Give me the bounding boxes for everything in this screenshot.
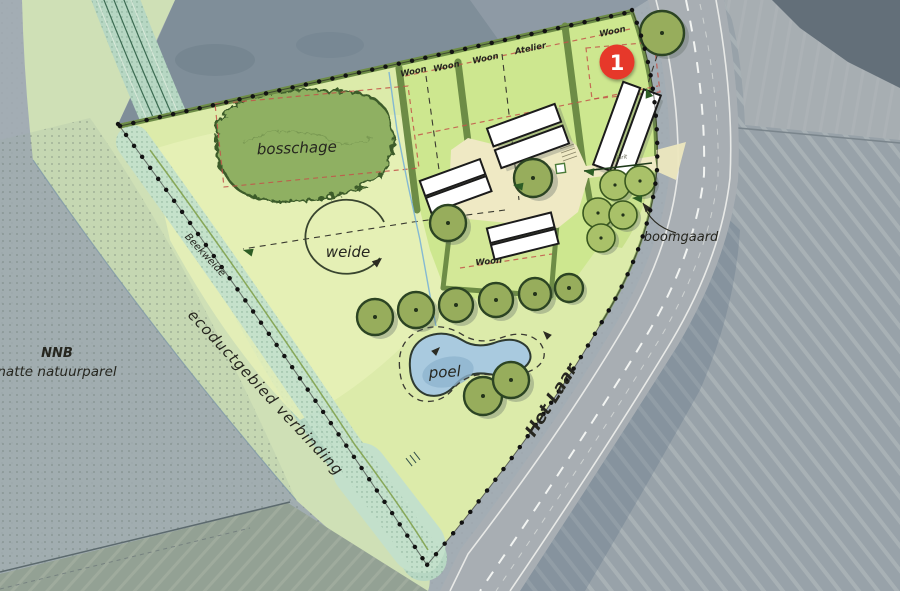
site-plan-map: bosschage weide poel boomgaard Het Laar … (0, 0, 900, 591)
tree-shadow-blob (175, 44, 255, 76)
label-nnb-sub: natte natuurparel (0, 364, 117, 380)
label-poel: poel (427, 362, 462, 382)
label-weide: weide (326, 243, 370, 261)
location-marker-1[interactable]: 1 (600, 45, 635, 80)
tree-shadow-blob (296, 32, 364, 58)
label-nnb: NNB (41, 346, 73, 361)
site-plan-canvas: bosschage weide poel boomgaard Het Laar … (0, 0, 900, 591)
marker-number: 1 (610, 51, 625, 75)
gate-marker (555, 163, 565, 173)
label-bosschage: bosschage (257, 138, 338, 159)
label-boomgaard: boomgaard (644, 230, 719, 245)
